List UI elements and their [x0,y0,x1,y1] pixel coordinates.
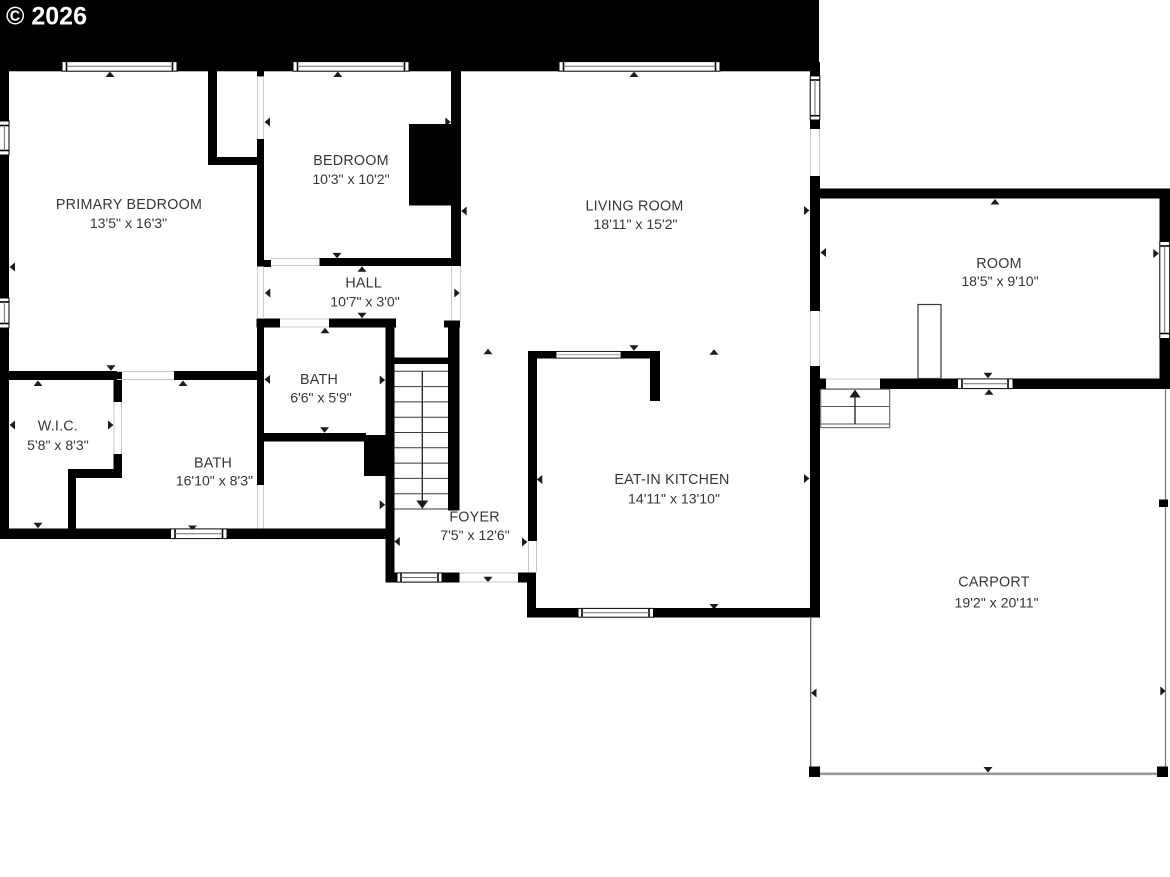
svg-text:7'5" x 12'6": 7'5" x 12'6" [440,527,509,543]
svg-text:ROOM: ROOM [976,256,1021,272]
svg-text:10'7" x 3'0": 10'7" x 3'0" [330,294,399,310]
svg-text:18'11" x 15'2": 18'11" x 15'2" [593,216,677,232]
svg-text:BATH: BATH [300,372,338,388]
svg-text:14'11" x 13'10": 14'11" x 13'10" [628,491,720,507]
svg-text:EAT-IN KITCHEN: EAT-IN KITCHEN [614,472,729,488]
svg-text:6'6" x 5'9": 6'6" x 5'9" [290,390,352,406]
svg-text:13'5" x 16'3": 13'5" x 16'3" [90,215,167,231]
svg-text:BEDROOM: BEDROOM [313,153,389,169]
svg-text:CARPORT: CARPORT [958,575,1029,591]
svg-text:5'8" x 8'3": 5'8" x 8'3" [27,437,89,453]
svg-text:BATH: BATH [194,456,232,472]
svg-text:16'10" x 8'3": 16'10" x 8'3" [176,473,253,489]
svg-text:PRIMARY BEDROOM: PRIMARY BEDROOM [56,197,202,213]
svg-text:10'3" x 10'2": 10'3" x 10'2" [312,171,389,187]
svg-text:© 2026: © 2026 [6,3,87,31]
svg-text:18'5" x 9'10": 18'5" x 9'10" [961,273,1038,289]
svg-text:LIVING ROOM: LIVING ROOM [585,199,683,215]
svg-text:19'2" x 20'11": 19'2" x 20'11" [955,595,1039,611]
svg-text:FOYER: FOYER [449,510,500,526]
svg-text:W.I.C.: W.I.C. [38,419,78,435]
svg-text:HALL: HALL [345,276,382,292]
